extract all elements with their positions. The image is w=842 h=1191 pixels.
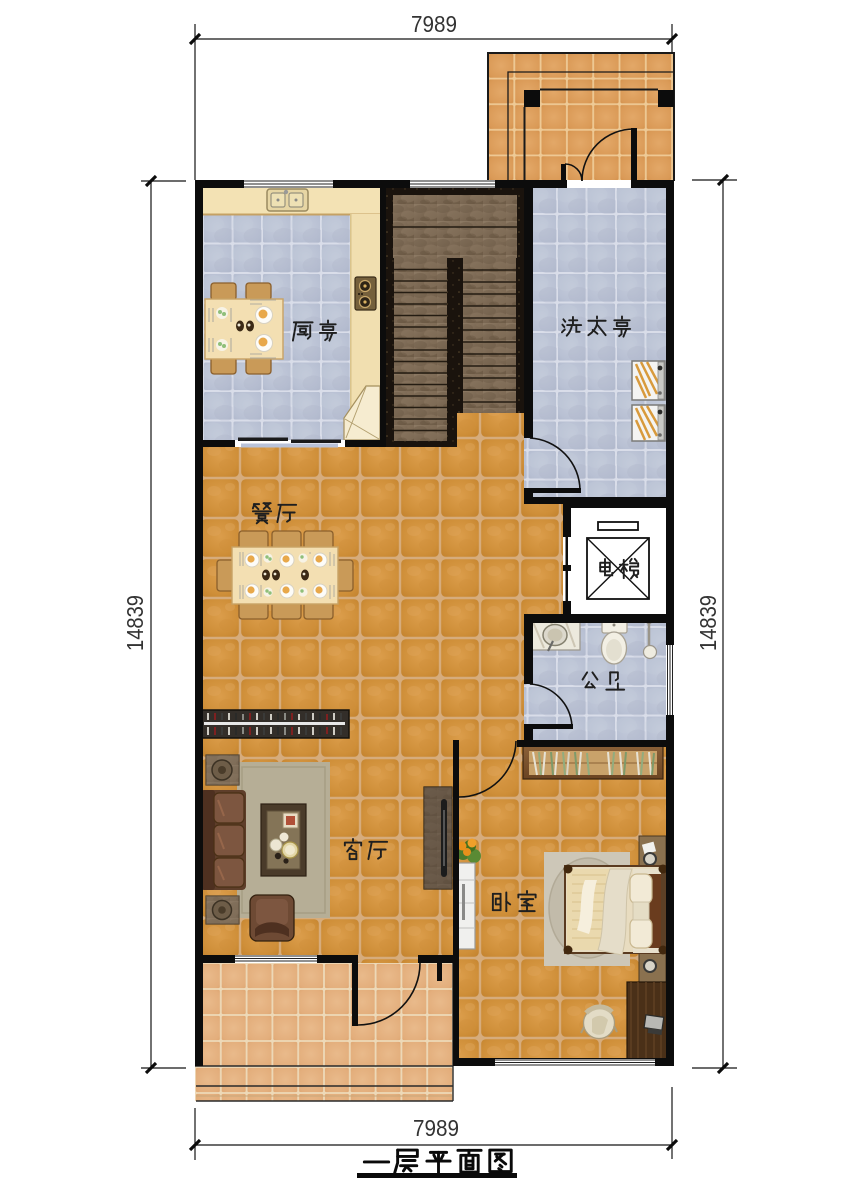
svg-text:14839: 14839 <box>695 595 721 651</box>
svg-text:7989: 7989 <box>413 1115 459 1141</box>
svg-text:7989: 7989 <box>411 11 457 37</box>
svg-text:14839: 14839 <box>122 595 148 651</box>
